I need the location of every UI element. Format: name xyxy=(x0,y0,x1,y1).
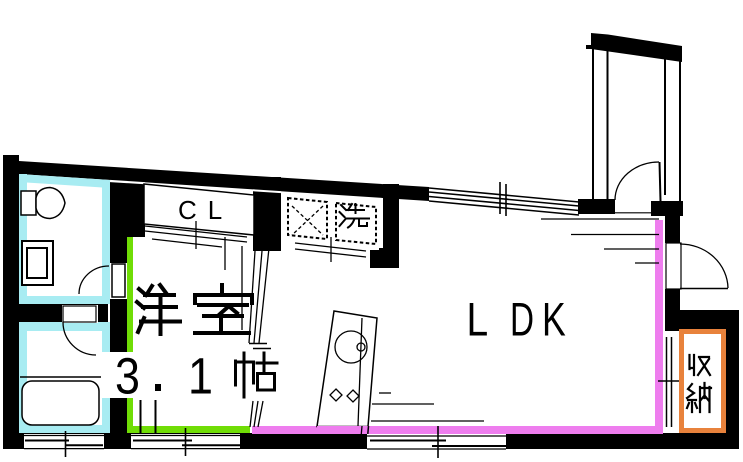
svg-text:3: 3 xyxy=(115,349,140,405)
svg-text:K: K xyxy=(542,293,566,346)
svg-text:L: L xyxy=(467,294,489,346)
svg-text:CL: CL xyxy=(178,195,233,225)
svg-text:1: 1 xyxy=(188,349,213,405)
svg-text:D: D xyxy=(510,293,534,346)
